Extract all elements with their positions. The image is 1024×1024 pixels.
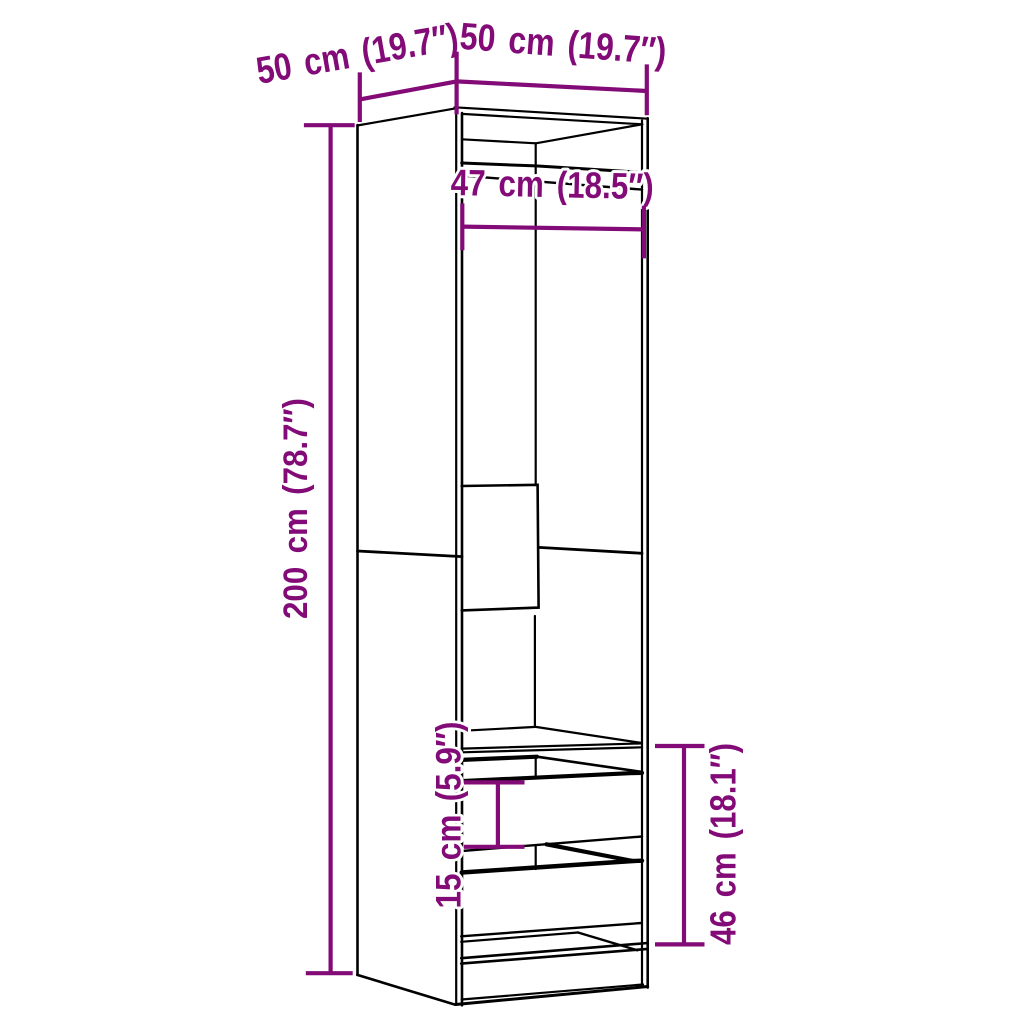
svg-text:15 cm (5.9″): 15 cm (5.9″) — [430, 722, 469, 909]
svg-text:47 cm (18.5″): 47 cm (18.5″) — [450, 162, 654, 207]
svg-text:200 cm (78.7″): 200 cm (78.7″) — [277, 398, 315, 619]
svg-text:46 cm (18.1″): 46 cm (18.1″) — [703, 743, 744, 945]
